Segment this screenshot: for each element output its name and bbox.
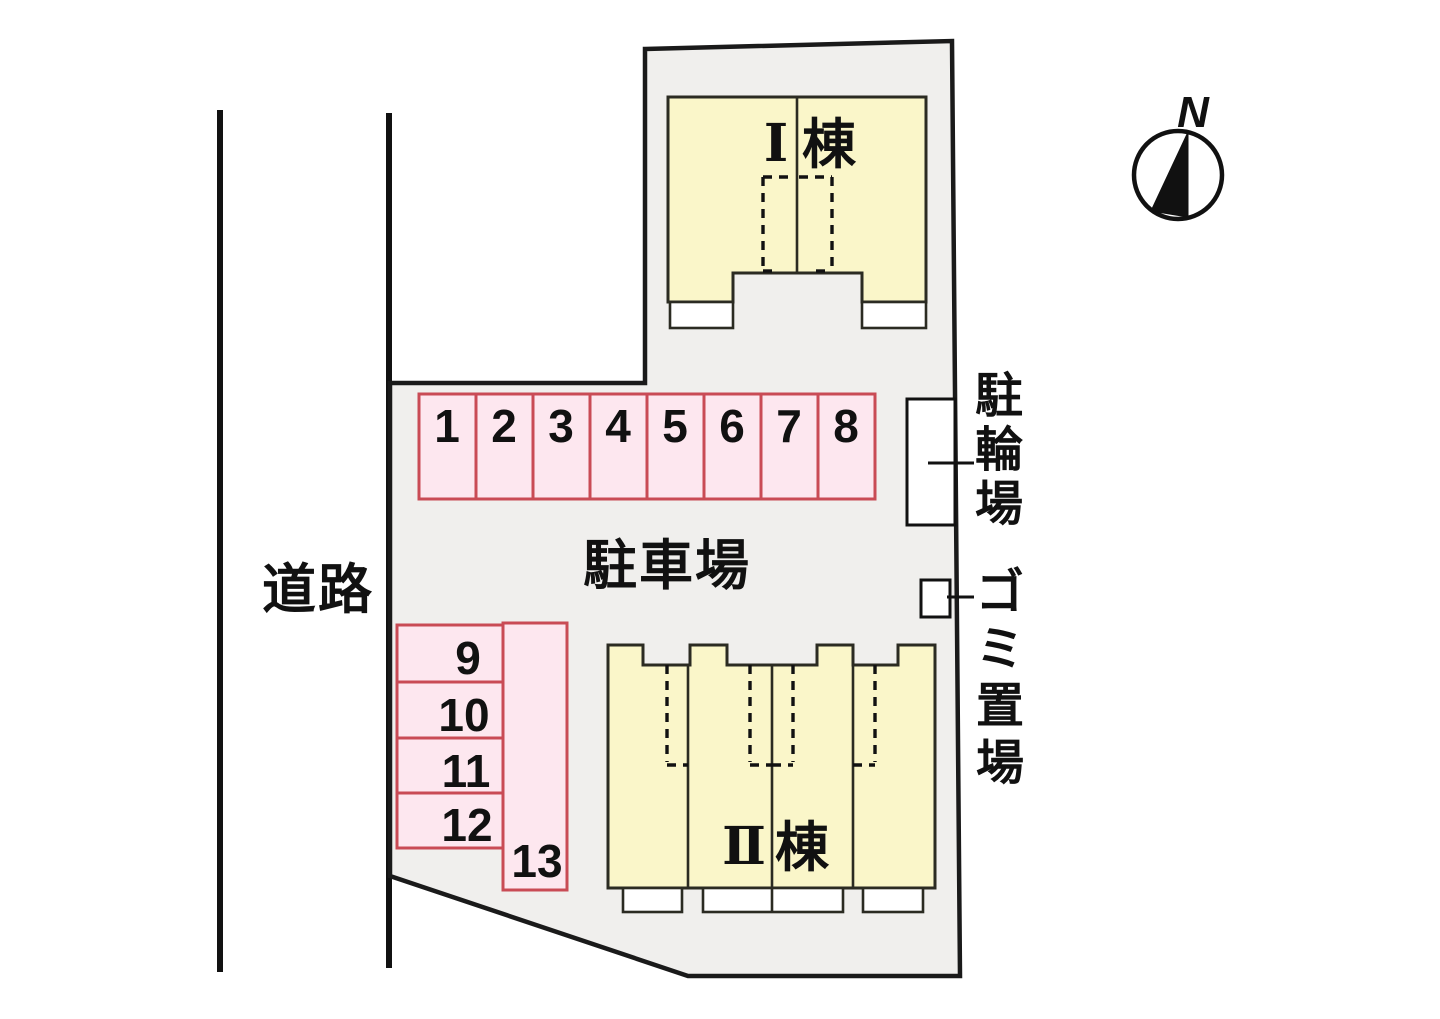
- building-2-numeral: Ⅱ: [722, 816, 766, 877]
- parking-lot-label: 駐車場: [583, 536, 751, 596]
- parking-space-number: 7: [776, 400, 802, 452]
- road-label: 道路: [262, 560, 374, 620]
- site-plan: Ⅰ 棟 1 2 3 4 5 6 7 8 9 10 11 12 13 駐車場: [0, 0, 1440, 1019]
- building-1-porch-right: [862, 302, 926, 328]
- parking-space: [397, 625, 503, 682]
- parking-space-number: 11: [442, 745, 491, 797]
- parking-space-number: 12: [441, 799, 492, 851]
- parking-space-number: 1: [434, 400, 460, 452]
- parking-space-number: 5: [662, 400, 688, 452]
- north-arrow-icon: [1151, 132, 1188, 217]
- parking-space-number: 3: [548, 400, 574, 452]
- bicycle-parking-label: 駐: [975, 370, 1023, 423]
- building-1-numeral: Ⅰ: [764, 113, 788, 174]
- garbage-area-label: ゴ: [976, 565, 1024, 619]
- garbage-area-label: 場: [976, 737, 1024, 790]
- building-2-suffix: 棟: [775, 818, 830, 878]
- garbage-area-box: [921, 580, 950, 617]
- bicycle-parking-label: 輪: [975, 424, 1023, 477]
- parking-space-number: 2: [491, 400, 517, 452]
- parking-space-number: 9: [455, 632, 481, 684]
- building-2-porch-left: [623, 888, 682, 912]
- garbage-area-label: ミ: [976, 623, 1024, 676]
- garbage-area-label: 置: [976, 680, 1024, 733]
- compass: N: [1134, 88, 1222, 219]
- parking-space-number: 4: [605, 400, 631, 452]
- building-2: Ⅱ 棟: [608, 645, 935, 912]
- site-plan-drawing: Ⅰ 棟 1 2 3 4 5 6 7 8 9 10 11 12 13 駐車場: [0, 0, 1440, 1019]
- parking-space-number: 10: [438, 689, 489, 741]
- building-1-suffix: 棟: [802, 115, 857, 175]
- bicycle-parking-label: 場: [975, 478, 1023, 531]
- parking-row-top: 1 2 3 4 5 6 7 8: [419, 394, 875, 499]
- building-2-porch-right: [863, 888, 923, 912]
- parking-space-number: 8: [833, 400, 859, 452]
- building-1-porch-left: [670, 302, 733, 328]
- parking-space-number: 13: [511, 835, 562, 887]
- parking-space-number: 6: [719, 400, 745, 452]
